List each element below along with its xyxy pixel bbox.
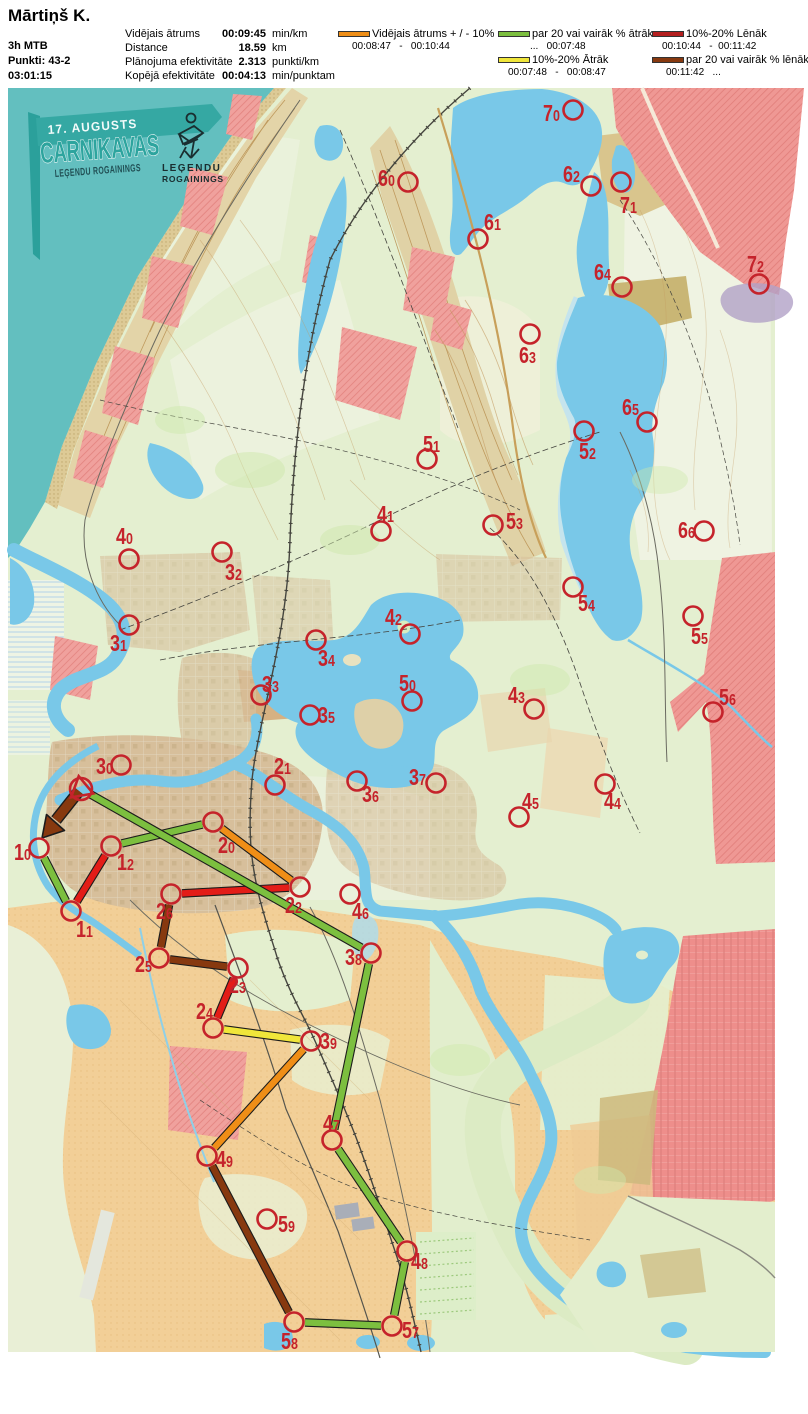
svg-text:ROGAININGS: ROGAININGS <box>162 174 224 184</box>
svg-text:LEĢENDU: LEĢENDU <box>162 163 221 174</box>
